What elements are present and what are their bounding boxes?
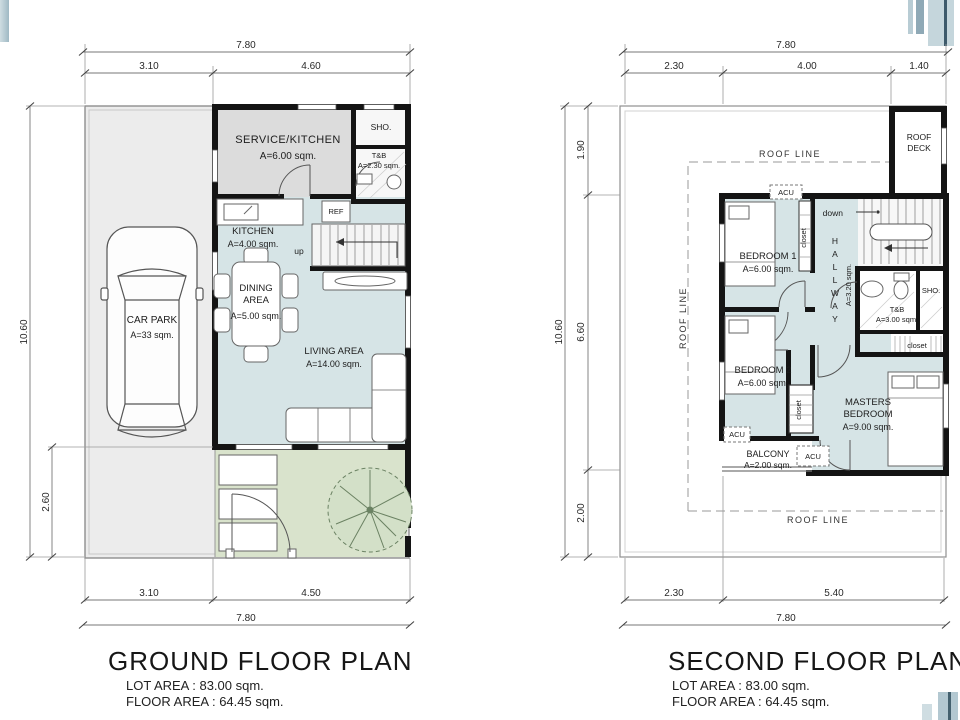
label-service-kitchen-area: A=6.00 sqm. [260,151,316,162]
ground-floor-plan: 7.80 3.10 4.60 10.60 2.60 3.10 4.50 7.80… [19,40,414,629]
dim-ground-top-right: 4.60 [301,61,321,72]
dim-ground-bottom-left: 3.10 [139,588,159,599]
label-living: LIVING AREA [304,346,364,357]
label-car-park: CAR PARK [127,315,178,326]
tree-icon [328,468,412,552]
dim-second-top-a: 2.30 [664,61,684,72]
stairs-icon-ground [312,224,405,266]
label-down: down [823,208,844,218]
dim-ground-bottom-right: 4.50 [301,588,321,599]
dim-second-top-total: 7.80 [776,40,796,51]
dim-second-top-b: 4.00 [797,61,817,72]
ground-floor-plan-title: GROUND FLOOR PLAN [108,646,413,677]
ground-floor-area: FLOOR AREA : 64.45 sqm. [126,694,413,709]
label-kitchen-area: A=4.00 sqm. [228,239,279,249]
dim-second-bottom-total: 7.80 [776,613,796,624]
dim-second-bottom-a: 2.30 [664,588,684,599]
label-bedroom1-area: A=6.00 sqm. [743,264,794,274]
label-balcony-area: A=2.00 sqm. [744,460,792,470]
label-up: up [294,246,304,256]
label-sho-second: SHO. [922,286,940,295]
label-kitchen: KITCHEN [232,226,274,237]
label-bedroom1: BEDROOM 1 [739,251,796,262]
second-floor-title-block: SECOND FLOOR PLAN LOT AREA : 83.00 sqm. … [668,646,960,709]
label-bedroom2-area: A=6.00 sqm. [738,378,789,388]
console-table-icon [323,272,407,290]
label-masters-area: A=9.00 sqm. [843,422,894,432]
dim-ground-bottom-total: 7.80 [236,613,256,624]
slide-canvas: 7.80 3.10 4.60 10.60 2.60 3.10 4.50 7.80… [0,0,960,720]
dim-ground-top-total: 7.80 [236,40,256,51]
label-dining-l2: AREA [243,295,270,306]
label-acu-balcony-left: ACU [729,430,745,439]
label-acu-balcony-right: ACU [805,452,821,461]
label-sho-ground: SHO. [371,122,392,132]
label-service-kitchen: SERVICE/KITCHEN [235,134,340,146]
label-balcony: BALCONY [746,449,789,459]
ground-floor-title-block: GROUND FLOOR PLAN LOT AREA : 83.00 sqm. … [108,646,413,709]
label-bedroom2: BEDROOM 2 [734,365,791,376]
label-tb-ground: T&B [372,151,387,160]
label-roof-line-top: ROOF LINE [759,149,821,159]
dim-second-top-c: 1.40 [909,61,929,72]
bed-icon-masters [888,372,943,466]
label-acu-top: ACU [778,188,794,197]
label-hallway: HALLWAY [830,236,840,327]
second-lot-area: LOT AREA : 83.00 sqm. [672,678,960,693]
label-dining-l1: DINING [239,283,272,294]
dim-ground-top-left: 3.10 [139,61,159,72]
label-masters-l2: BEDROOM [843,409,892,420]
second-floor-plan: 7.80 2.30 4.00 1.40 10.60 1.90 6.60 2.00… [554,40,952,629]
dim-second-side-a: 1.90 [576,140,587,160]
roof-deck-floor [893,110,945,197]
label-roof-line-bottom: ROOF LINE [787,515,849,525]
dim-second-bottom-b: 5.40 [824,588,844,599]
label-closet-bedroom2: closet [794,399,803,420]
second-floor-area: FLOOR AREA : 64.45 sqm. [672,694,960,709]
ground-lot-area: LOT AREA : 83.00 sqm. [126,678,413,693]
label-tb-second-area: A=3.00 sqm. [876,315,918,324]
label-car-park-area: A=33 sqm. [130,330,173,340]
label-closet-bedroom1: closet [799,227,808,248]
second-floor-plan-title: SECOND FLOOR PLAN [668,646,960,677]
label-hallway-area: A=3.20 sqm. [844,264,853,306]
floor-plans-drawing: 7.80 3.10 4.60 10.60 2.60 3.10 4.50 7.80… [0,0,960,720]
label-living-area: A=14.00 sqm. [306,359,362,369]
label-roof-deck-l1: ROOF [907,132,932,142]
dim-second-side-c: 2.00 [576,503,587,523]
garden-steps-icon [219,455,277,551]
label-dining-area: A=5.00 sqm. [231,311,282,321]
label-roof-deck-l2: DECK [907,143,931,153]
label-tb-second: T&B [890,305,905,314]
label-roof-line-left: ROOF LINE [678,287,688,349]
dim-second-side-b: 6.60 [576,322,587,342]
label-closet-top: closet [907,341,928,350]
label-tb-ground-area: A=2.30 sqm. [358,161,400,170]
dim-ground-side-garden: 2.60 [41,492,52,512]
dim-second-side-total: 10.60 [554,319,565,344]
label-ref: REF [329,207,344,216]
kitchen-counter-icon [217,199,303,225]
label-masters-l1: MASTERS [845,397,891,408]
dim-ground-side-total: 10.60 [19,319,30,344]
